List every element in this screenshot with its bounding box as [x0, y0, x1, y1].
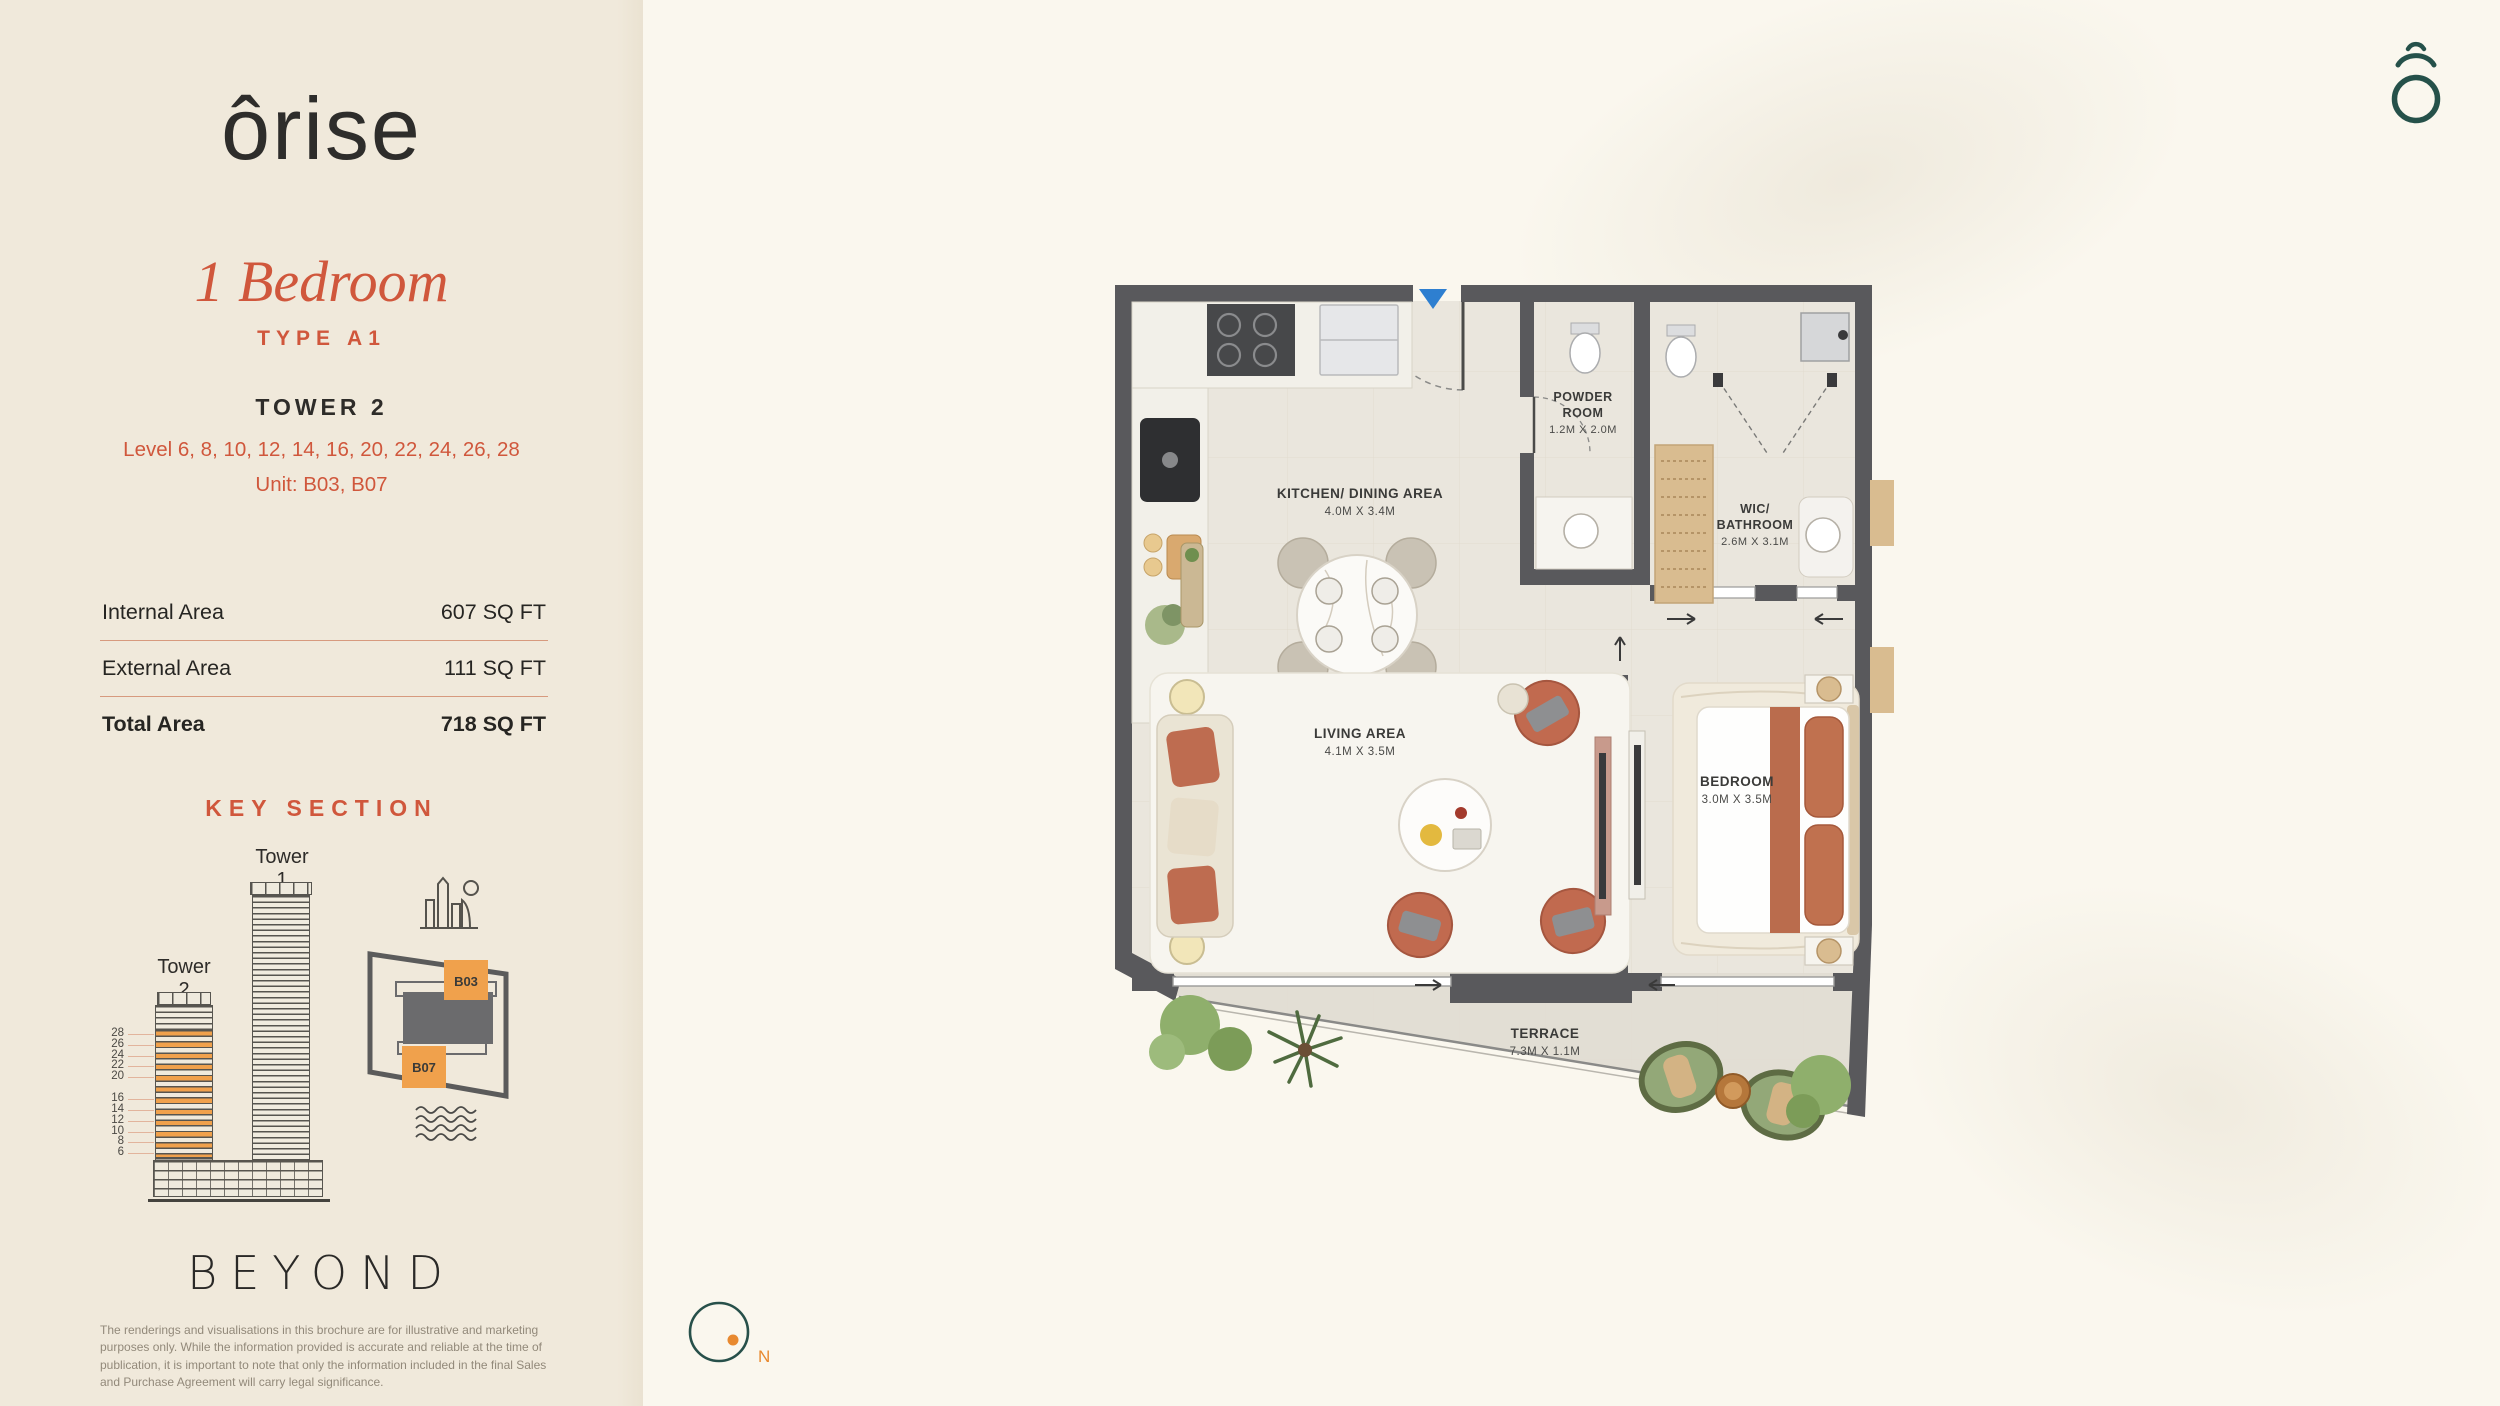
leader-line [128, 1153, 154, 1154]
leader-line [128, 1132, 154, 1133]
disclaimer-text: The renderings and visualisations in thi… [100, 1322, 552, 1392]
toilet-icon [1570, 333, 1600, 373]
leader-line [128, 1045, 154, 1046]
dining-table-icon [1297, 555, 1417, 675]
brand-logo: ôrise [0, 78, 643, 180]
tower2-roof [157, 992, 211, 1005]
powder-room-dims: 1.2M X 2.0M [1549, 424, 1617, 436]
bedroom-window [1661, 977, 1834, 986]
compass-circle-icon [690, 1303, 748, 1361]
terrace-label: TERRACE [1511, 1026, 1580, 1041]
coffee-table-icon [1399, 779, 1491, 871]
exterior-ledge [1870, 480, 1894, 546]
living-furniture [1150, 669, 1630, 973]
floor-lamp-icon [1170, 680, 1204, 714]
area-value: 718 SQ FT [441, 712, 546, 737]
sink-icon [1806, 518, 1840, 552]
unit-b07-label: B07 [412, 1060, 436, 1075]
leader-line [128, 1034, 154, 1035]
living-area-label: LIVING AREA [1314, 726, 1406, 741]
tower2-highlighted-floors [155, 1030, 213, 1157]
sink-icon [1564, 514, 1598, 548]
key-section-title: KEY SECTION [0, 795, 643, 822]
tower2-body-top [155, 1005, 213, 1030]
pillow [1805, 825, 1843, 925]
brochure-page: ôrise 1 Bedroom TYPE A1 TOWER 2 Level 6,… [0, 0, 2500, 1406]
table-row: Internal Area 607 SQ FT [100, 585, 548, 641]
north-compass: N [680, 1292, 790, 1382]
table-row: External Area 111 SQ FT [100, 641, 548, 697]
leader-line [128, 1121, 154, 1122]
o-mark-icon [2384, 38, 2448, 130]
level-label: 20 [96, 1070, 124, 1082]
kitchen-dims: 4.0M X 3.4M [1325, 506, 1396, 518]
pillow [1805, 717, 1843, 817]
tower-name: TOWER 2 [0, 394, 643, 421]
skyline-icon [420, 878, 478, 928]
waves-icon [416, 1107, 476, 1140]
living-area-dims: 4.1M X 3.5M [1325, 746, 1396, 758]
unit-title: 1 Bedroom [0, 248, 643, 315]
leader-line [128, 1056, 154, 1057]
tower1-roof [250, 882, 312, 895]
floor-plan: KITCHEN/ DINING AREA 4.0M X 3.4M POWDER … [1115, 285, 1915, 1155]
compass-dot-icon [728, 1335, 739, 1346]
wic-bathroom-label: WIC/ [1740, 502, 1770, 516]
area-label: Internal Area [102, 600, 224, 625]
terrace-dims: 7.3M X 1.1M [1510, 1046, 1581, 1058]
bedroom-dims: 3.0M X 3.5M [1702, 794, 1773, 806]
north-label: N [758, 1347, 770, 1366]
side-table-icon [1498, 684, 1528, 714]
exterior-ledge [1870, 647, 1894, 713]
unit-key-outline: B03 B07 [370, 954, 506, 1096]
leader-line [128, 1142, 154, 1143]
area-label: Total Area [102, 712, 205, 737]
kitchen-label: KITCHEN/ DINING AREA [1277, 486, 1443, 501]
tower1-body [252, 895, 310, 1162]
unit-numbers: Unit: B03, B07 [0, 473, 643, 497]
level-label: 6 [96, 1146, 124, 1158]
wic-bathroom-label: BATHROOM [1717, 518, 1794, 532]
powder-room-label: POWDER [1553, 390, 1612, 404]
bedroom-label: BEDROOM [1700, 774, 1774, 789]
podium [153, 1160, 323, 1197]
bedroom-furniture [1673, 675, 1859, 965]
area-value: 111 SQ FT [444, 656, 546, 681]
area-label: External Area [102, 656, 231, 681]
area-table: Internal Area 607 SQ FT External Area 11… [100, 585, 548, 752]
wardrobe-icon [1655, 445, 1713, 603]
leader-line [128, 1077, 154, 1078]
leader-line [128, 1110, 154, 1111]
leader-line [128, 1099, 154, 1100]
unit-b03-label: B03 [454, 974, 478, 989]
ground-line [148, 1199, 330, 1202]
unit-levels: Level 6, 8, 10, 12, 14, 16, 20, 22, 24, … [0, 438, 643, 462]
table-row: Total Area 718 SQ FT [100, 697, 548, 752]
dining-set [1278, 538, 1436, 692]
area-value: 607 SQ FT [441, 600, 546, 625]
toilet-icon [1666, 337, 1696, 377]
left-panel: ôrise 1 Bedroom TYPE A1 TOWER 2 Level 6,… [0, 0, 643, 1406]
powder-room-label: ROOM [1563, 406, 1604, 420]
wic-bathroom-dims: 2.6M X 3.1M [1721, 536, 1789, 548]
site-key-plan: B03 B07 [358, 870, 543, 1150]
stove-icon [1207, 304, 1295, 376]
leader-line [128, 1066, 154, 1067]
developer-logo: BEYOND [0, 1246, 643, 1300]
living-window [1173, 977, 1451, 986]
unit-type: TYPE A1 [0, 327, 643, 351]
